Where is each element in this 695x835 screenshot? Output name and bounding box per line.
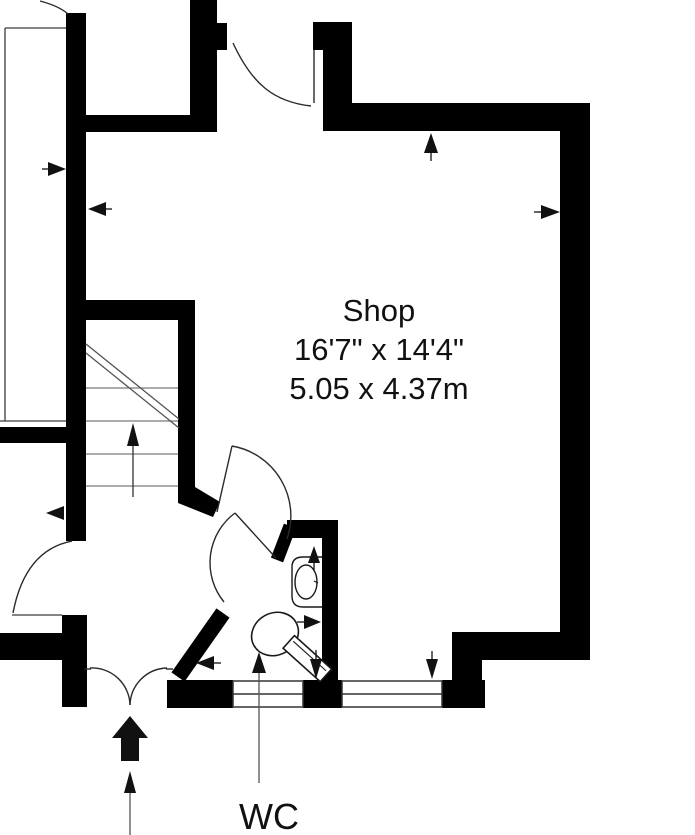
- entrance-door-arc-left: [90, 668, 130, 705]
- wc-room-label: WC: [194, 796, 344, 835]
- wall-stairs: [86, 300, 220, 517]
- arrow-icon: [297, 615, 321, 629]
- room-size-imperial: 16'7" x 14'4": [229, 330, 529, 369]
- wall-top-left: [83, 0, 227, 132]
- arrow-icon: [534, 205, 560, 219]
- arrow-icon: [42, 162, 66, 176]
- wall-entrance-column: [62, 615, 87, 707]
- wall-wc-diagonal-left: [178, 613, 223, 677]
- wall-top-jamb: [313, 22, 352, 103]
- lobby-door-arc: [232, 446, 291, 539]
- stair-break-line: [86, 344, 179, 419]
- wc-door-arc: [210, 513, 235, 602]
- wall-bottom-2: [303, 680, 342, 708]
- hall-door: [13, 541, 72, 613]
- entrance-door-arc-right: [130, 668, 167, 705]
- staircase: [86, 344, 179, 497]
- wall-right: [560, 103, 590, 660]
- arrow-icon: [424, 133, 438, 161]
- room-name: Shop: [229, 291, 529, 330]
- wall-top: [323, 103, 590, 131]
- arrow-icon: [46, 506, 64, 520]
- wall-bay-wing: [0, 427, 66, 443]
- top-door: [233, 43, 314, 106]
- wc-pointer-arrow-icon: [252, 652, 266, 673]
- room-label: Shop 16'7" x 14'4" 5.05 x 4.37m: [229, 291, 529, 408]
- floorplan-drawing: [0, 0, 695, 835]
- room-size-metric: 5.05 x 4.37m: [229, 369, 529, 408]
- entrance-pointer: [124, 771, 136, 835]
- entrance-door: [84, 668, 173, 705]
- arrow-icon: [88, 202, 112, 216]
- wc-pointer: [252, 652, 266, 783]
- wall-left: [66, 13, 86, 541]
- lobby-door: [217, 446, 291, 539]
- arrow-icon: [426, 651, 438, 679]
- lobby-door-leaf: [217, 446, 232, 512]
- wall-bottom-1: [167, 680, 233, 708]
- entrance-arrow-icon: [112, 716, 148, 761]
- wc-door-leaf: [235, 513, 276, 558]
- wall-bottom-3: [442, 680, 485, 708]
- wall-entrance-wing: [0, 633, 62, 660]
- entrance-pointer-arrow-icon: [124, 771, 136, 793]
- top-left-door-arc: [40, 1, 68, 14]
- top-door-arc: [233, 43, 311, 106]
- wall-wc-diagonal-top: [277, 526, 290, 560]
- sink-symbol: [292, 557, 322, 607]
- bay-outline: [0, 28, 66, 615]
- wc-door: [210, 513, 276, 602]
- hall-door-arc: [13, 541, 72, 613]
- stair-break-line: [86, 353, 179, 428]
- floorplan: Shop 16'7" x 14'4" 5.05 x 4.37m WC: [0, 0, 695, 835]
